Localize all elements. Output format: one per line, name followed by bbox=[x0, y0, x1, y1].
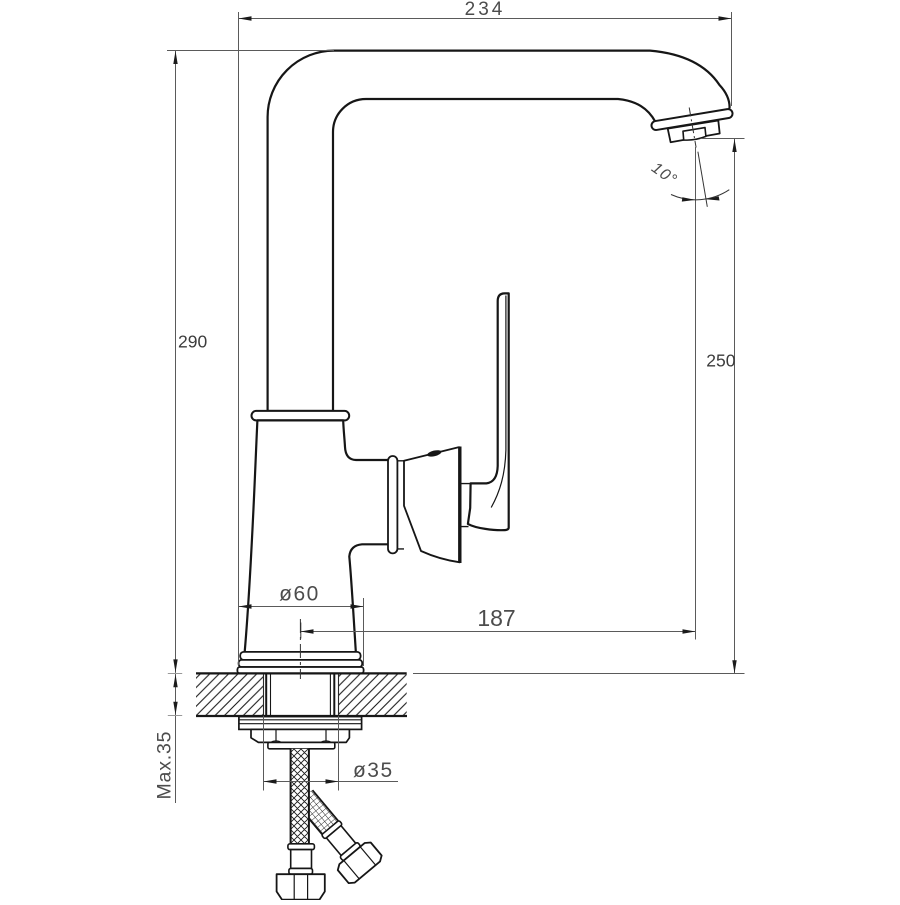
svg-text:ø35: ø35 bbox=[353, 759, 394, 782]
svg-text:Max.35: Max.35 bbox=[154, 731, 176, 800]
svg-text:ø60: ø60 bbox=[279, 583, 320, 606]
svg-text:234: 234 bbox=[465, 0, 506, 20]
svg-text:290: 290 bbox=[178, 332, 207, 352]
svg-text:187: 187 bbox=[477, 605, 515, 631]
svg-text:10°: 10° bbox=[648, 159, 680, 189]
svg-text:250: 250 bbox=[706, 351, 735, 371]
